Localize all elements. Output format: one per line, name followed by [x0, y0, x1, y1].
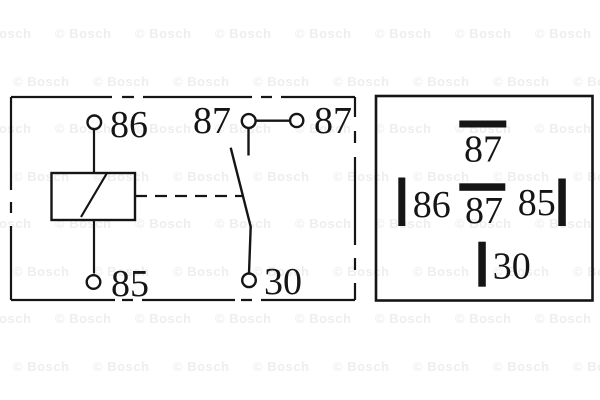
- label-87-right: 87: [314, 100, 352, 142]
- pin-label-87-top: 87: [464, 129, 502, 171]
- terminal-87-right-circle: [290, 114, 303, 127]
- terminal-86-circle: [88, 116, 102, 130]
- pin-30-bar: [478, 242, 486, 287]
- terminal-85-circle: [87, 275, 101, 289]
- schematic-box-border: [11, 97, 355, 300]
- relay-circuit-diagram: 86 87 87 85 30 87 86 87 85 30: [0, 0, 600, 400]
- label-86: 86: [110, 104, 148, 146]
- pin-label-85: 85: [518, 182, 556, 224]
- terminal-87-left-circle: [242, 114, 256, 128]
- pin-85-bar: [558, 179, 566, 227]
- label-30: 30: [264, 261, 302, 303]
- pin-label-30: 30: [493, 246, 531, 288]
- coil-diagonal: [81, 173, 107, 217]
- terminal-30-circle: [242, 274, 256, 288]
- pin-label-87-mid: 87: [465, 190, 503, 232]
- pin-87-top-bar: [459, 121, 506, 128]
- relay-diagram-page: © Bosch© Bosch© Bosch© Bosch© Bosch© Bos…: [0, 0, 600, 400]
- label-87-left: 87: [193, 100, 231, 142]
- pin-label-86: 86: [413, 184, 451, 226]
- switch-armature: [231, 148, 251, 274]
- label-85: 85: [111, 263, 149, 305]
- pin-86-bar: [398, 178, 405, 227]
